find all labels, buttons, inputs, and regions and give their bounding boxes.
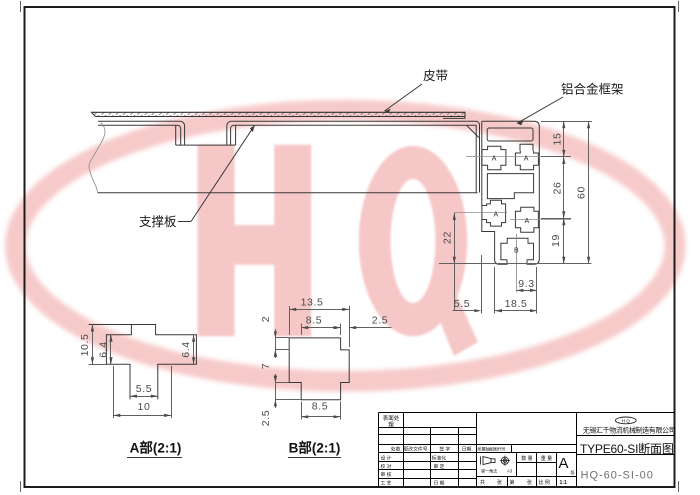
- svg-text:60: 60: [576, 186, 588, 199]
- svg-text:2.5: 2.5: [260, 410, 272, 426]
- svg-text:皮带: 皮带: [423, 69, 448, 83]
- svg-text:5.5: 5.5: [454, 298, 470, 310]
- svg-text:A: A: [558, 455, 568, 472]
- svg-text:A部(2:1): A部(2:1): [130, 440, 182, 456]
- svg-text:所属轴配图代号: 所属轴配图代号: [478, 445, 506, 452]
- svg-text:6.4: 6.4: [98, 341, 110, 357]
- svg-text:1:1: 1:1: [560, 480, 567, 486]
- svg-text:校 对: 校 对: [381, 463, 392, 470]
- svg-text:处数: 处数: [391, 445, 401, 452]
- svg-text:18.5: 18.5: [505, 298, 528, 310]
- svg-text:A: A: [492, 156, 497, 163]
- svg-text:A: A: [525, 218, 530, 225]
- svg-text:TYPE60-SI断面图: TYPE60-SI断面图: [580, 441, 674, 456]
- svg-text:HQ-60-SI-00: HQ-60-SI-00: [581, 470, 654, 482]
- svg-text:A3: A3: [507, 468, 513, 473]
- svg-text:审 核: 审 核: [381, 471, 392, 478]
- svg-text:26: 26: [552, 182, 564, 195]
- svg-text:B: B: [514, 248, 519, 255]
- svg-text:15: 15: [552, 133, 564, 146]
- svg-text:设 计: 设 计: [381, 454, 392, 461]
- svg-text:10.5: 10.5: [79, 334, 91, 357]
- svg-text:无锡汇千物流机械制造有限公司: 无锡汇千物流机械制造有限公司: [583, 426, 676, 435]
- svg-text:更改文件号: 更改文件号: [404, 445, 428, 452]
- svg-text:8.5: 8.5: [312, 401, 328, 413]
- svg-text:张: 张: [527, 479, 532, 486]
- svg-text:9.3: 9.3: [518, 278, 534, 290]
- svg-text:2: 2: [260, 316, 272, 322]
- svg-text:理: 理: [388, 422, 394, 429]
- svg-text:19: 19: [550, 234, 562, 247]
- svg-text:10: 10: [138, 401, 151, 413]
- svg-text:7: 7: [260, 363, 272, 369]
- svg-text:标准化: 标准化: [432, 454, 447, 461]
- svg-text:工 艺: 工 艺: [381, 481, 392, 487]
- svg-text:H Q: H Q: [622, 418, 631, 423]
- svg-text:表面处: 表面处: [383, 414, 400, 422]
- svg-text:13.5: 13.5: [301, 297, 324, 309]
- svg-text:8.5: 8.5: [306, 315, 322, 327]
- svg-text:6.4: 6.4: [180, 341, 192, 357]
- svg-text:审 定: 审 定: [434, 463, 445, 470]
- svg-text:支撑板: 支撑板: [139, 214, 177, 229]
- svg-text:A: A: [494, 212, 499, 219]
- svg-text:张: 张: [497, 479, 502, 486]
- svg-text:签 字: 签 字: [439, 445, 450, 452]
- svg-text:22: 22: [442, 231, 454, 244]
- svg-text:第: 第: [510, 479, 515, 486]
- svg-text:数 量: 数 量: [521, 455, 532, 462]
- svg-text:重 量: 重 量: [541, 455, 552, 462]
- svg-text:日期: 日期: [462, 446, 472, 452]
- svg-text:日 期: 日 期: [434, 481, 445, 487]
- svg-text:A: A: [524, 156, 529, 163]
- svg-text:B部(2:1): B部(2:1): [289, 440, 341, 456]
- svg-text:第一角法: 第一角法: [481, 467, 497, 474]
- svg-text:版: 版: [571, 469, 575, 475]
- svg-text:铝合金框架: 铝合金框架: [561, 82, 624, 97]
- svg-text:2.5: 2.5: [372, 315, 388, 327]
- svg-text:5.5: 5.5: [136, 383, 152, 395]
- svg-text:比 例: 比 例: [539, 479, 550, 486]
- svg-text:共: 共: [480, 479, 485, 486]
